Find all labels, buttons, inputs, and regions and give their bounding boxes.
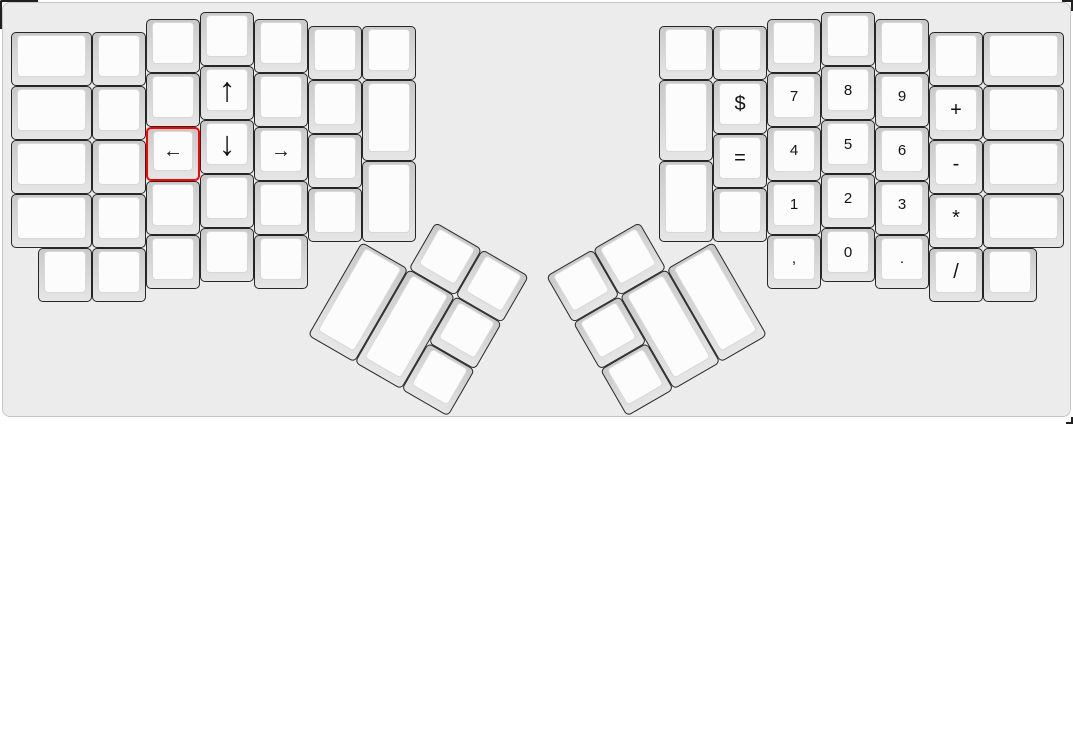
key-legend: , [792,251,796,266]
key-period[interactable]: . [875,235,929,289]
keycap-top [989,35,1058,77]
keycap-top: = [719,137,761,179]
key-legend: ← [163,141,183,161]
key-legend: = [734,148,746,168]
key-6[interactable]: 6 [875,127,929,181]
keyboard-canvas: ←↑↓→ $=741,8520963.+-*/ [2,2,1071,417]
key-minus[interactable]: - [929,140,983,194]
key-legend: - [953,154,960,174]
key-legend: . [900,251,904,266]
bottom-right-corner-mark [1066,417,1073,424]
keycap-top: / [935,251,977,293]
keycap-top [719,191,761,233]
key-legend: * [952,208,960,228]
key-legend: 2 [844,191,852,206]
key-blank[interactable] [983,194,1064,248]
key-blank[interactable] [983,32,1064,86]
key-legend: 7 [790,89,798,104]
key-5[interactable]: 5 [821,120,875,174]
keycap-top [989,251,1031,293]
keycap-top: * [935,197,977,239]
keycap-top [881,22,923,64]
top-left-corner-mark [0,0,38,29]
key-blank[interactable] [875,19,929,73]
keycap-top: 8 [827,69,869,111]
keycap-top: 0 [827,231,869,273]
key-blank[interactable] [983,86,1064,140]
key-legend: 0 [844,245,852,260]
key-legend: 3 [898,197,906,212]
keycap-top: 5 [827,123,869,165]
keycap-top [773,22,815,64]
key-4[interactable]: 4 [767,127,821,181]
keycap-top: 2 [827,177,869,219]
key-0[interactable]: 0 [821,228,875,282]
keycap-top [827,15,869,57]
keycap-top: - [935,143,977,185]
key-1[interactable]: 1 [767,181,821,235]
key-equals[interactable]: = [713,134,767,188]
key-comma[interactable]: , [767,235,821,289]
key-legend: + [950,100,962,120]
keycap-top: ← [153,131,193,171]
page: { "app": { "description": "keyboard layo… [0,0,1073,424]
key-3[interactable]: 3 [875,181,929,235]
key-asterisk[interactable]: * [929,194,983,248]
key-legend: 9 [898,89,906,104]
keycap-top: 7 [773,76,815,118]
key-legend: 4 [790,143,798,158]
key-legend: 6 [898,143,906,158]
key-blank[interactable] [767,19,821,73]
keycap-top [989,197,1058,239]
keycap-top: $ [719,83,761,125]
keycap-top [719,29,761,71]
key-legend: $ [734,94,745,114]
key-legend: 5 [844,137,852,152]
keycap-top: 1 [773,184,815,226]
key-blank[interactable] [983,140,1064,194]
keycap-top: 9 [881,76,923,118]
keycap-top: 3 [881,184,923,226]
key-blank[interactable] [659,80,713,161]
key-dollar[interactable]: $ [713,80,767,134]
keycap-top [935,35,977,77]
key-blank[interactable] [929,32,983,86]
top-right-corner-mark [1062,0,1073,11]
keycap-top: 6 [881,130,923,172]
key-slash[interactable]: / [929,248,983,302]
keycap-top [665,83,707,152]
key-left-arrow[interactable]: ← [146,127,200,181]
keycap-top [989,143,1058,185]
key-7[interactable]: 7 [767,73,821,127]
key-8[interactable]: 8 [821,66,875,120]
key-legend: 1 [790,197,798,212]
key-legend: 8 [844,83,852,98]
keycap-top [665,164,707,233]
key-blank[interactable] [659,26,713,80]
key-blank[interactable] [713,188,767,242]
key-9[interactable]: 9 [875,73,929,127]
keycap-top [989,89,1058,131]
keycap-top: , [773,238,815,280]
keycap-top: + [935,89,977,131]
key-blank[interactable] [713,26,767,80]
keycap-top: 4 [773,130,815,172]
key-blank[interactable] [659,161,713,242]
key-2[interactable]: 2 [821,174,875,228]
key-blank[interactable] [821,12,875,66]
keycap-top [665,29,707,71]
key-blank[interactable] [983,248,1037,302]
right-main-block: $=741,8520963.+-*/ [3,3,1070,416]
key-plus[interactable]: + [929,86,983,140]
key-legend: / [953,262,959,282]
keycap-top: . [881,238,923,280]
